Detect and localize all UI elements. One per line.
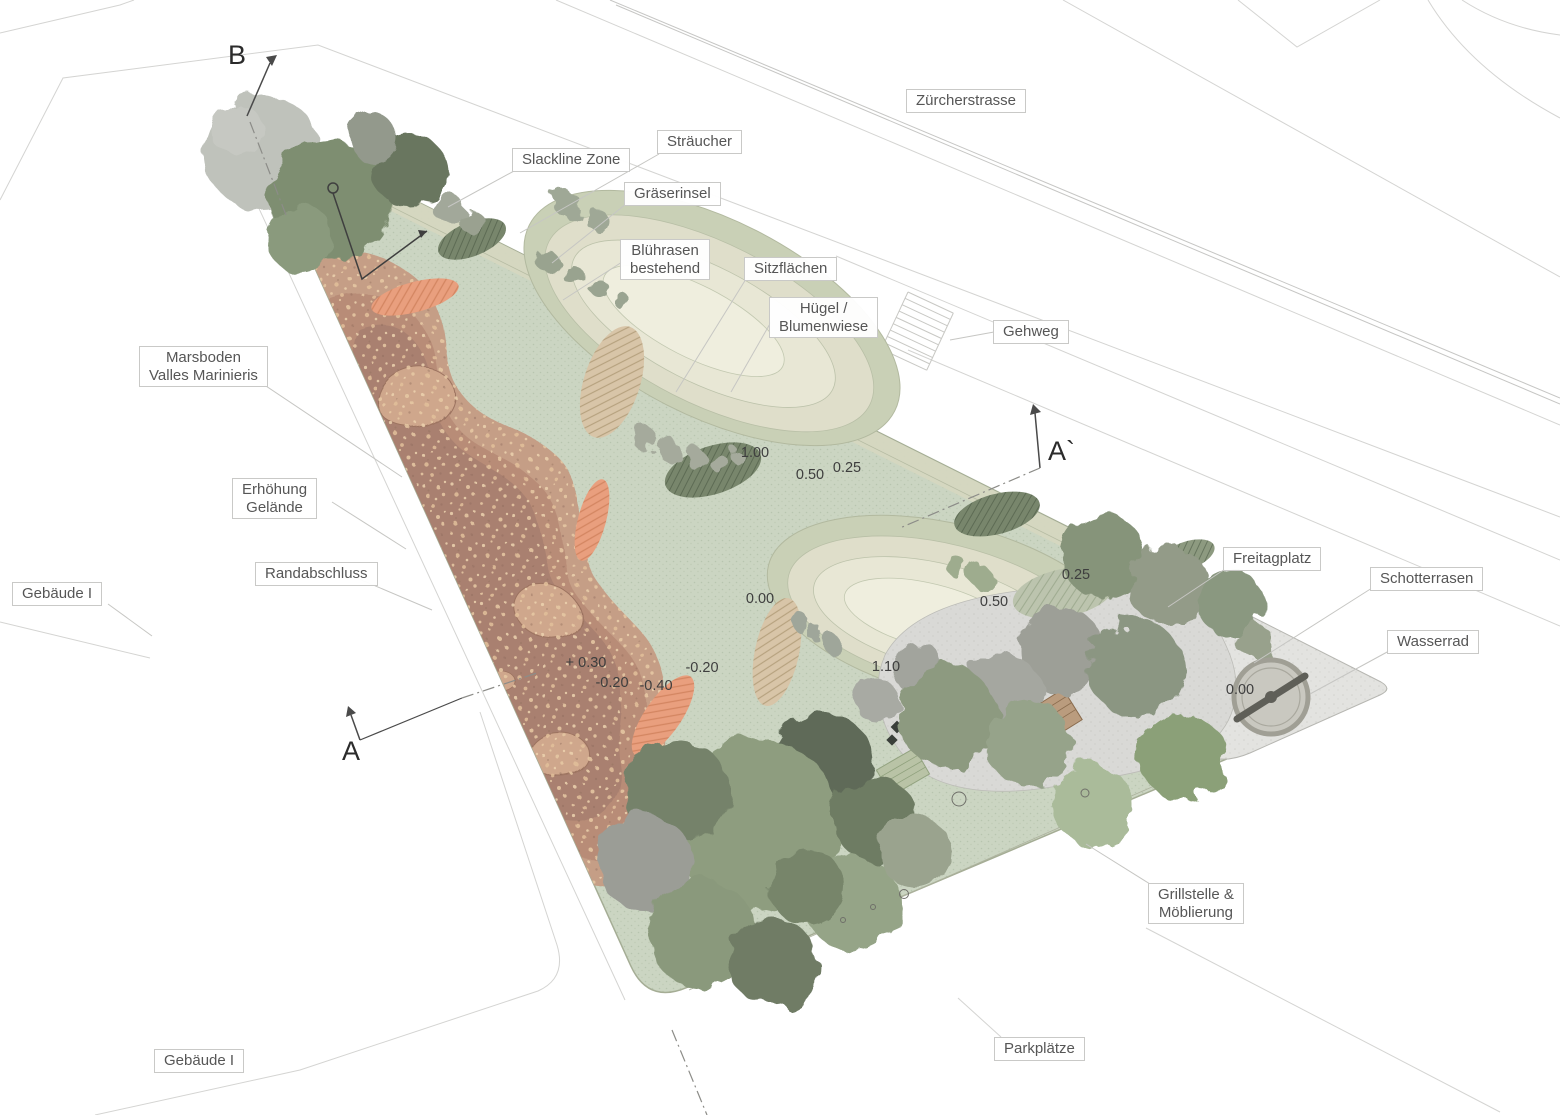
label-wasserrad: Wasserrad: [1387, 630, 1479, 654]
label-grillstelle: Grillstelle & Möblierung: [1148, 883, 1244, 924]
label-line: Blührasen: [630, 242, 700, 260]
label-graeserinsel: Gräserinsel: [624, 182, 721, 206]
label-line: Valles Marinieris: [149, 367, 258, 385]
elevation-value: 0.00: [1226, 682, 1254, 698]
section-label-b: B: [228, 40, 246, 71]
label-line: Grillstelle &: [1158, 886, 1234, 904]
label-gebaeude-left: Gebäude I: [12, 582, 102, 606]
elevation-value: + 0.30: [566, 655, 607, 671]
label-zuercherstrasse: Zürcherstrasse: [906, 89, 1026, 113]
section-label-a: A: [342, 736, 360, 767]
elevation-value: -0.40: [639, 678, 672, 694]
elevation-value: 1.10: [872, 659, 900, 675]
label-straeucher: Sträucher: [657, 130, 742, 154]
label-line: bestehend: [630, 260, 700, 278]
label-bluehrasen: Blührasen bestehend: [620, 239, 710, 280]
elevation-value: 1.00: [741, 445, 769, 461]
label-schotterrasen: Schotterrasen: [1370, 567, 1483, 591]
label-gehweg: Gehweg: [993, 320, 1069, 344]
label-line: Blumenwiese: [779, 318, 868, 336]
section-line-bottom: [672, 1030, 707, 1115]
section-label-a-prime: A`: [1048, 436, 1075, 467]
label-line: Möblierung: [1158, 904, 1234, 922]
elevation-value: 0.25: [833, 460, 861, 476]
elevation-value: 0.00: [746, 591, 774, 607]
label-randabschluss: Randabschluss: [255, 562, 378, 586]
section-marker-a: [346, 672, 540, 740]
elevation-value: 0.25: [1062, 567, 1090, 583]
label-huegel-blumenwiese: Hügel / Blumenwiese: [769, 297, 878, 338]
label-erhoehung-gelaende: Erhöhung Gelände: [232, 478, 317, 519]
elevation-value: -0.20: [595, 675, 628, 691]
label-slackline-zone: Slackline Zone: [512, 148, 630, 172]
elevation-value: -0.20: [685, 660, 718, 676]
label-gebaeude-bottom: Gebäude I: [154, 1049, 244, 1073]
label-marsboden: Marsboden Valles Marinieris: [139, 346, 268, 387]
label-sitzflaechen: Sitzflächen: [744, 257, 837, 281]
label-line: Hügel /: [779, 300, 868, 318]
elevation-value: 0.50: [796, 467, 824, 483]
label-parkplaetze: Parkplätze: [994, 1037, 1085, 1061]
label-freitagplatz: Freitagplatz: [1223, 547, 1321, 571]
label-line: Marsboden: [149, 349, 258, 367]
label-line: Gelände: [242, 499, 307, 517]
label-line: Erhöhung: [242, 481, 307, 499]
elevation-value: 0.50: [980, 594, 1008, 610]
plan-drawing: 1.00 0.50 0.25 0.00 0.50 0.25 1.10 + 0.3…: [0, 0, 1560, 1115]
site-plan-canvas: 1.00 0.50 0.25 0.00 0.50 0.25 1.10 + 0.3…: [0, 0, 1560, 1115]
